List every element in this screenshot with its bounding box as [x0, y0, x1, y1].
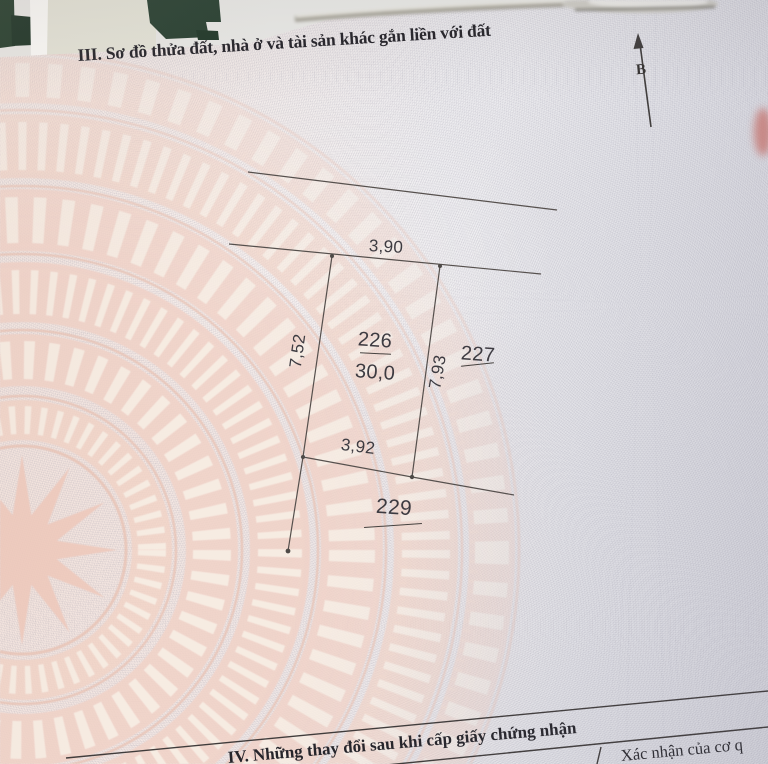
neighbor-parcel-bottom: 229 — [375, 495, 413, 521]
dimension-top: 3,90 — [368, 236, 403, 258]
photo-of-land-certificate-page: III. Sơ đồ thửa đất, nhà ở và tài sản kh… — [0, 0, 768, 764]
red-cover-sliver — [754, 108, 768, 156]
boundary-corner-dots — [286, 254, 442, 553]
north-arrow-icon — [634, 33, 652, 127]
parcel-boundary-lines — [229, 172, 557, 551]
parcel-number: 226 — [357, 328, 393, 353]
dimension-bottom: 3,92 — [340, 435, 376, 459]
parcel-area: 30,0 — [354, 360, 396, 386]
north-arrow-label: B — [635, 62, 646, 80]
